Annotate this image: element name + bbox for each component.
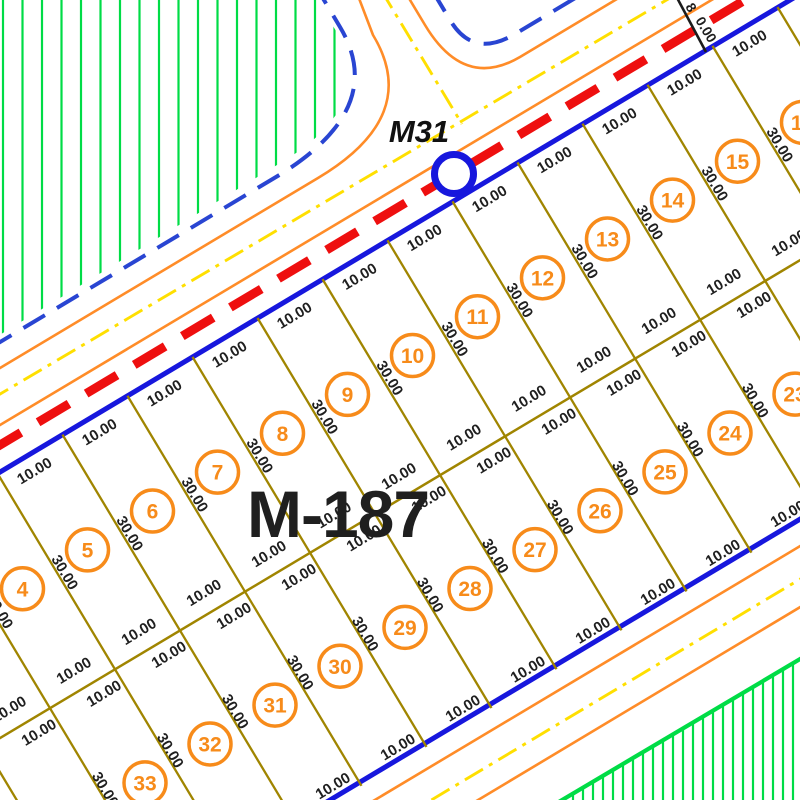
- lot-number: 29: [393, 617, 416, 640]
- lot-number: 11: [466, 306, 489, 329]
- lot-number: 6: [147, 501, 159, 524]
- lot-number: 14: [661, 190, 685, 213]
- lot-number: 15: [726, 151, 750, 174]
- monument-point-label: M31: [389, 114, 449, 149]
- lot-number: 24: [718, 423, 742, 446]
- lot-number: 7: [212, 462, 224, 485]
- lot-number: 16: [791, 112, 800, 135]
- lot-number: 13: [596, 229, 619, 252]
- lot-number: 25: [653, 461, 677, 484]
- cadastral-map: 30.0010.0030.0010.0030.0010.0030.0010.00…: [0, 0, 800, 800]
- lot-number: 28: [458, 578, 482, 601]
- cadastral-map-screenshot: 30.0010.0030.0010.0030.0010.0030.0010.00…: [0, 0, 800, 800]
- lot-number: 33: [133, 772, 156, 795]
- lot-number: 27: [523, 539, 546, 562]
- block-label: M-187: [247, 477, 429, 551]
- lot-number: 30: [328, 656, 351, 679]
- lot-number: 32: [198, 734, 221, 757]
- lot-number: 8: [277, 423, 289, 446]
- lot-number: 10: [401, 345, 424, 368]
- lot-number: 5: [82, 539, 94, 562]
- lot-number: 23: [783, 384, 800, 407]
- lot-number: 31: [263, 695, 287, 718]
- lot-number: 26: [588, 500, 611, 523]
- monument-m31-circle: [435, 155, 474, 194]
- lot-number: 12: [531, 267, 554, 290]
- lot-number: 9: [342, 384, 354, 407]
- lot-number: 4: [17, 578, 29, 601]
